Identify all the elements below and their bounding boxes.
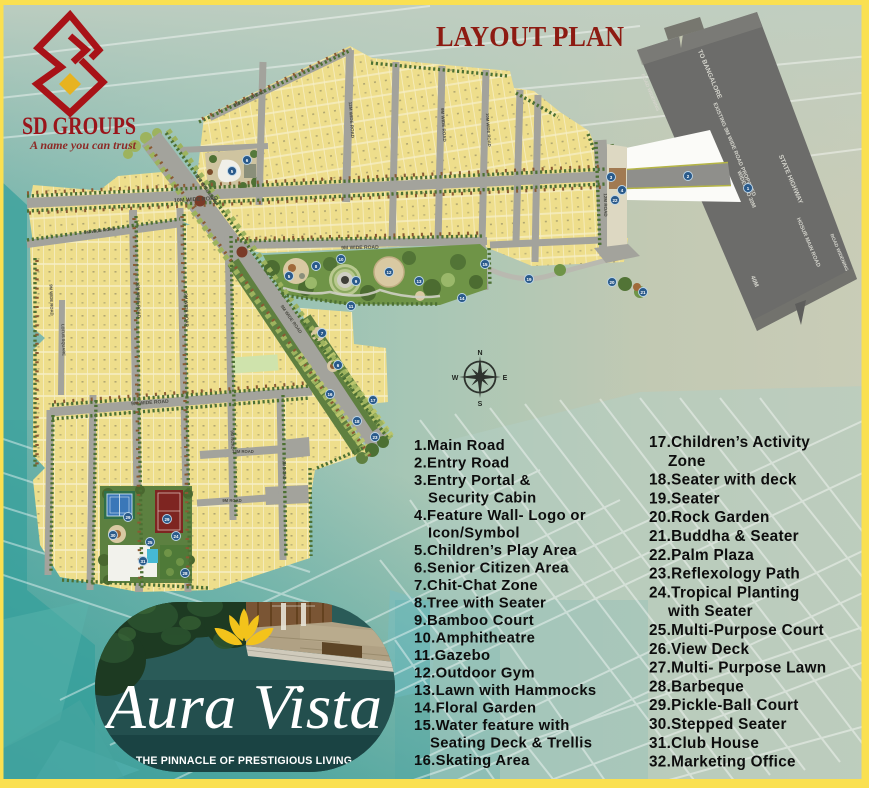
svg-text:24: 24 bbox=[173, 534, 179, 539]
svg-text:9M WIDE ROAD: 9M WIDE ROAD bbox=[341, 245, 379, 252]
svg-text:10.Amphitheatre: 10.Amphitheatre bbox=[414, 631, 535, 647]
svg-text:20.Rock Garden: 20.Rock Garden bbox=[649, 509, 770, 526]
svg-text:25.Multi-Purpose Court: 25.Multi-Purpose Court bbox=[649, 622, 824, 639]
svg-text:14.Floral Garden: 14.Floral Garden bbox=[414, 701, 536, 717]
svg-text:24.Tropical Planting: 24.Tropical Planting bbox=[649, 584, 800, 601]
svg-text:7.Chit-Chat Zone: 7.Chit-Chat Zone bbox=[414, 578, 538, 594]
svg-text:23: 23 bbox=[372, 435, 378, 440]
svg-text:SD GROUPS: SD GROUPS bbox=[22, 113, 136, 140]
svg-text:19.Seater: 19.Seater bbox=[649, 490, 720, 507]
svg-text:19: 19 bbox=[526, 277, 532, 282]
svg-text:17.Children’s Activity: 17.Children’s Activity bbox=[649, 434, 810, 451]
svg-text:12: 12 bbox=[386, 270, 392, 275]
svg-text:6.Senior Citizen Area: 6.Senior Citizen Area bbox=[414, 561, 569, 577]
svg-text:28.Barbeque: 28.Barbeque bbox=[649, 678, 744, 695]
svg-text:32.Marketing Office: 32.Marketing Office bbox=[649, 754, 796, 771]
svg-text:E: E bbox=[503, 375, 508, 382]
svg-text:11.Gazebo: 11.Gazebo bbox=[414, 648, 490, 664]
svg-text:29: 29 bbox=[164, 517, 170, 522]
svg-text:A name you can trust: A name you can trust bbox=[29, 138, 137, 152]
svg-text:23.Reflexology Path: 23.Reflexology Path bbox=[649, 566, 800, 583]
svg-text:22.Palm Plaza: 22.Palm Plaza bbox=[649, 547, 754, 564]
svg-text:with Seater: with Seater bbox=[667, 603, 753, 620]
svg-text:13.Lawn with Hammocks: 13.Lawn with Hammocks bbox=[414, 683, 597, 699]
svg-text:22: 22 bbox=[612, 198, 618, 203]
svg-text:5.Children’s Play Area: 5.Children’s Play Area bbox=[414, 543, 577, 559]
svg-text:9.Bamboo Court: 9.Bamboo Court bbox=[414, 613, 534, 629]
svg-text:2.Entry Road: 2.Entry Road bbox=[414, 456, 509, 472]
svg-text:Aura Vista: Aura Vista bbox=[102, 671, 382, 742]
svg-text:29: 29 bbox=[125, 515, 131, 520]
svg-text:31.Club House: 31.Club House bbox=[649, 735, 759, 752]
svg-text:15.Water feature with: 15.Water feature with bbox=[414, 718, 570, 734]
svg-text:27.Multi- Purpose Lawn: 27.Multi- Purpose Lawn bbox=[649, 660, 826, 677]
svg-text:Seating Deck & Trellis: Seating Deck & Trellis bbox=[430, 736, 592, 752]
svg-text:N: N bbox=[477, 350, 482, 357]
svg-text:12.Outdoor Gym: 12.Outdoor Gym bbox=[414, 666, 535, 682]
svg-text:29.Pickle-Ball Court: 29.Pickle-Ball Court bbox=[649, 697, 799, 714]
svg-text:13: 13 bbox=[416, 279, 422, 284]
svg-text:15: 15 bbox=[482, 262, 488, 267]
svg-text:18: 18 bbox=[354, 419, 360, 424]
svg-text:LAYOUT PLAN: LAYOUT PLAN bbox=[436, 22, 624, 53]
svg-text:16.Skating Area: 16.Skating Area bbox=[414, 753, 530, 769]
svg-text:30: 30 bbox=[110, 533, 116, 538]
svg-text:11: 11 bbox=[349, 304, 354, 309]
svg-text:S: S bbox=[478, 401, 483, 408]
svg-text:Icon/Symbol: Icon/Symbol bbox=[428, 526, 520, 542]
svg-text:8.Tree with Seater: 8.Tree with Seater bbox=[414, 596, 546, 612]
svg-text:31: 31 bbox=[140, 559, 146, 564]
svg-text:26.View Deck: 26.View Deck bbox=[649, 641, 749, 658]
svg-text:12M ROAD: 12M ROAD bbox=[603, 193, 608, 217]
svg-text:1.Main Road: 1.Main Road bbox=[414, 438, 505, 454]
svg-text:9M ROAD: 9M ROAD bbox=[230, 430, 236, 449]
svg-text:13M ROAD: 13M ROAD bbox=[232, 449, 254, 454]
svg-text:17: 17 bbox=[370, 398, 376, 403]
svg-text:25: 25 bbox=[147, 540, 153, 545]
svg-text:W: W bbox=[452, 375, 459, 382]
svg-text:Security Cabin: Security Cabin bbox=[428, 491, 537, 507]
svg-text:4.Feature Wall- Logo or: 4.Feature Wall- Logo or bbox=[414, 508, 586, 524]
svg-text:Zone: Zone bbox=[668, 453, 706, 470]
svg-text:18.Seater with deck: 18.Seater with deck bbox=[649, 472, 797, 489]
svg-text:9M ROAD: 9M ROAD bbox=[282, 460, 288, 479]
svg-text:3.Entry Portal &: 3.Entry Portal & bbox=[414, 473, 531, 489]
svg-text:20: 20 bbox=[609, 280, 615, 285]
svg-text:THE PINNACLE OF PRESTIGIOUS LI: THE PINNACLE OF PRESTIGIOUS LIVING bbox=[136, 755, 352, 767]
svg-text:10: 10 bbox=[338, 257, 344, 262]
svg-text:30.Stepped Seater: 30.Stepped Seater bbox=[649, 716, 787, 733]
svg-text:16: 16 bbox=[327, 392, 333, 397]
svg-text:14: 14 bbox=[459, 296, 465, 301]
svg-text:21: 21 bbox=[640, 290, 646, 295]
svg-text:28: 28 bbox=[182, 571, 188, 576]
svg-text:21.Buddha & Seater: 21.Buddha & Seater bbox=[649, 528, 799, 545]
svg-text:9M ROAD: 9M ROAD bbox=[222, 498, 241, 503]
